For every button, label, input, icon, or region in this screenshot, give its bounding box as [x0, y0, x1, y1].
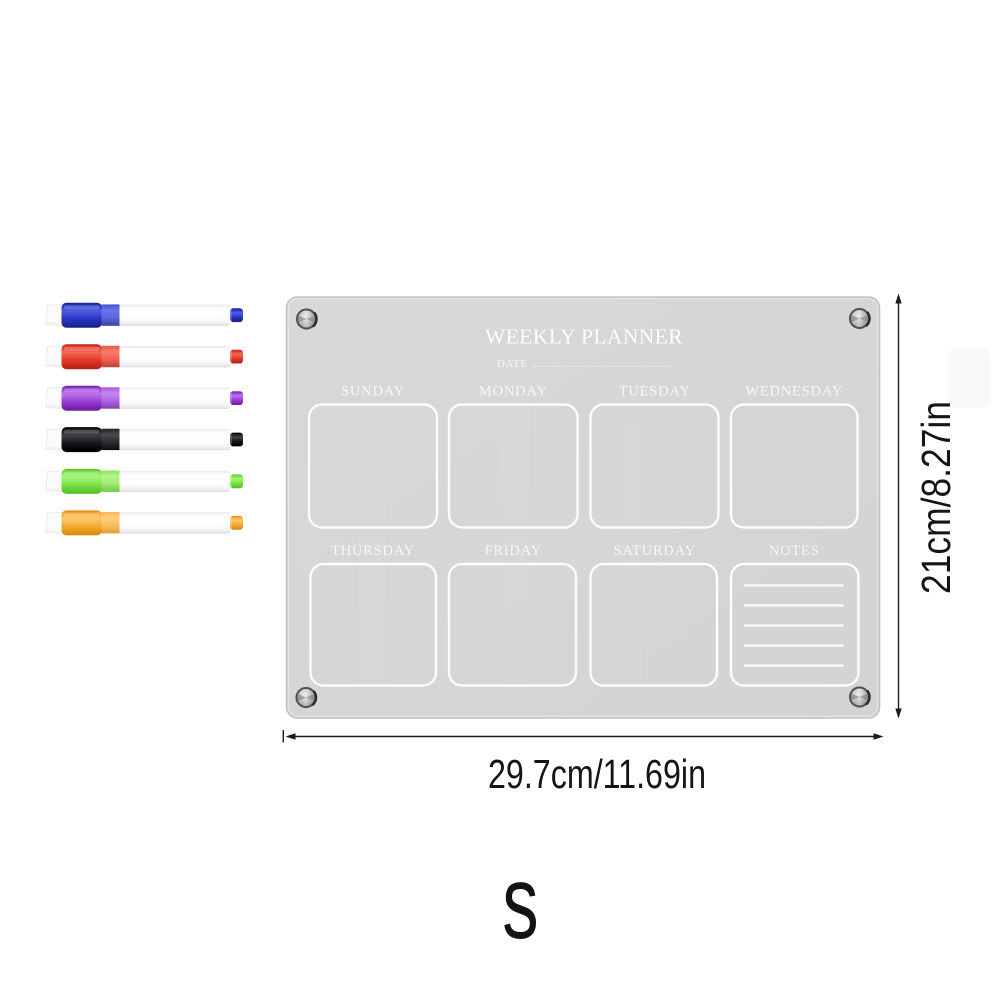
svg-text:DATE .........................: DATE ...................................… — [497, 358, 672, 370]
svg-text:THURSDAY: THURSDAY — [331, 543, 415, 559]
svg-text:SUNDAY: SUNDAY — [341, 384, 405, 400]
svg-text:MONDAY: MONDAY — [479, 384, 548, 400]
svg-text:SATURDAY: SATURDAY — [613, 543, 695, 559]
svg-text:21cm/8.27in: 21cm/8.27in — [913, 401, 959, 594]
svg-text:s: s — [502, 845, 538, 961]
svg-text:WEDNESDAY: WEDNESDAY — [745, 384, 843, 400]
svg-text:NOTES: NOTES — [769, 543, 820, 559]
svg-text:29.7cm/11.69in: 29.7cm/11.69in — [488, 751, 706, 797]
svg-text:WEEKLY PLANNER: WEEKLY PLANNER — [485, 325, 683, 349]
svg-text:TUESDAY: TUESDAY — [619, 384, 691, 400]
svg-text:FRIDAY: FRIDAY — [485, 543, 542, 559]
